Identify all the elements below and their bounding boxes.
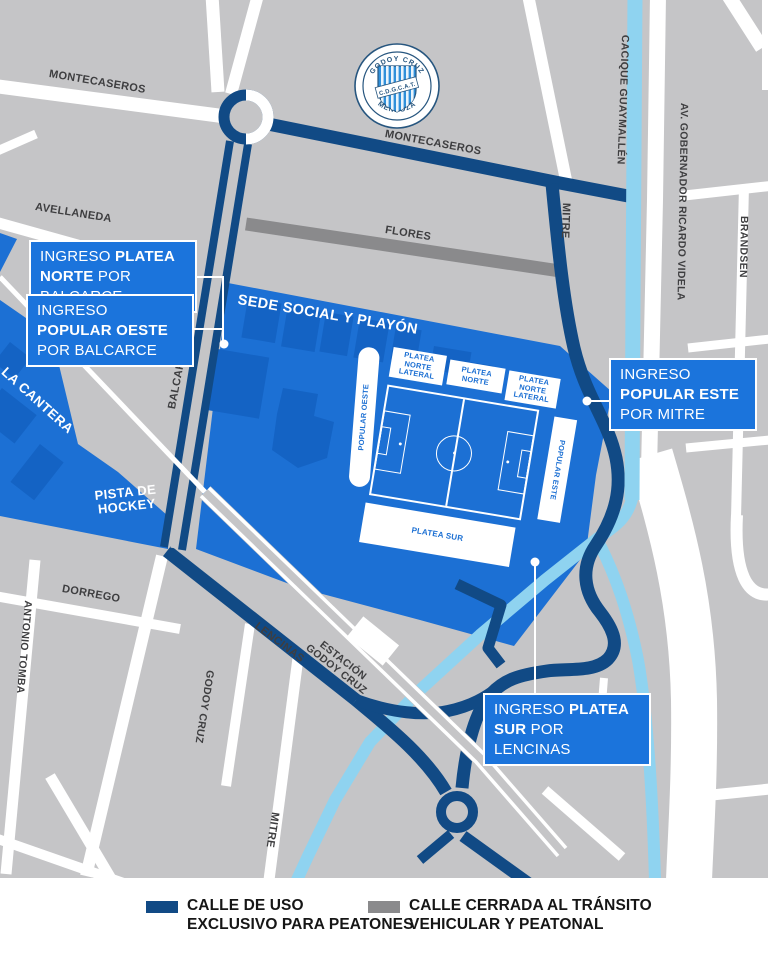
roundabout-south xyxy=(441,796,473,828)
callout-ingreso-platea-sur: INGRESO PLATEA SUR POR LENCINAS xyxy=(483,693,651,766)
street-label-brandsen: BRANDSEN xyxy=(737,216,749,278)
street-label-gobernador-videla: AV. GOBERNADOR RICARDO VIDELA xyxy=(675,103,689,301)
callout-ingreso-popular-oeste: INGRESO POPULAR OESTE POR BALCARCE xyxy=(26,294,194,367)
legend: CALLE DE USO EXCLUSIVO PARA PEATONES CAL… xyxy=(0,878,768,960)
stadium-access-map: GODOY CRUZ MENDOZA C.D.G.C.A.T. MONTECAS… xyxy=(0,0,768,960)
stand-platea-norte: PLATEA NORTE xyxy=(446,360,505,394)
callout-ingreso-popular-este: INGRESO POPULAR ESTE POR MITRE xyxy=(609,358,757,431)
stand-platea-norte-lateral-der: PLATEA NORTE LATERAL xyxy=(504,370,560,408)
street-label-mitre-ne: MITRE xyxy=(558,203,571,239)
football-pitch xyxy=(369,384,539,520)
stadium: POPULAR OESTE PLATEA NORTE LATERAL PLATE… xyxy=(333,342,593,577)
club-crest-logo: GODOY CRUZ MENDOZA C.D.G.C.A.T. xyxy=(353,42,441,130)
legend-item-closed: CALLE CERRADA AL TRÁNSITO VEHICULAR Y PE… xyxy=(368,896,652,934)
stand-popular-este: POPULAR ESTE xyxy=(537,416,577,522)
legend-swatch-navy xyxy=(146,901,178,913)
legend-swatch-gray xyxy=(368,901,400,913)
